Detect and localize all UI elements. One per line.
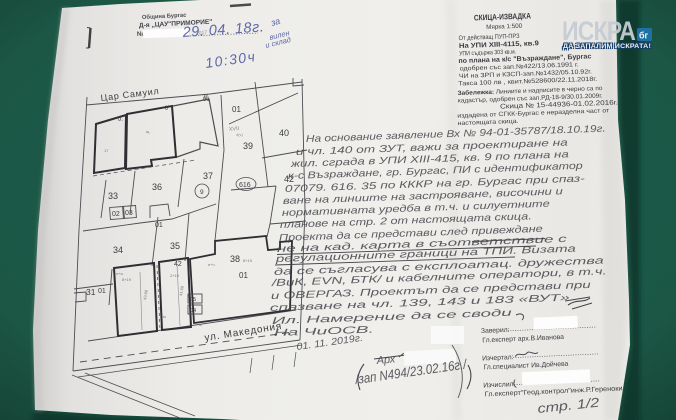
svg-text:35: 35 xyxy=(170,241,180,251)
svg-text:ДА ЗАПАЛИМ ИСКРАТА!: ДА ЗАПАЛИМ ИСКРАТА! xyxy=(563,43,651,50)
svg-text:8+19: 8+19 xyxy=(243,258,253,263)
svg-text:Арх: Арх xyxy=(375,353,396,367)
svg-text:п+ч: п+ч xyxy=(208,262,215,267)
svg-text:Изчислил:: Изчислил: xyxy=(483,381,516,389)
svg-text:ИСКРА: ИСКРА xyxy=(562,16,635,46)
svg-text:м: м xyxy=(163,314,166,319)
svg-text:01: 01 xyxy=(98,288,106,295)
svg-text:02: 02 xyxy=(112,211,120,218)
svg-text:8+19: 8+19 xyxy=(122,277,132,282)
svg-text:03: 03 xyxy=(125,210,133,217)
svg-text:34: 34 xyxy=(113,245,123,255)
svg-text:36: 36 xyxy=(152,182,162,192)
svg-text:37: 37 xyxy=(203,171,213,181)
svg-text:Мярка 1:500: Мярка 1:500 xyxy=(486,23,523,31)
svg-text:01: 01 xyxy=(239,271,248,280)
svg-text:616: 616 xyxy=(239,182,251,189)
svg-text:04: 04 xyxy=(190,308,196,314)
svg-text:Изчертал:: Изчертал: xyxy=(482,354,514,362)
svg-text:17: 17 xyxy=(104,148,109,153)
svg-text:39: 39 xyxy=(243,141,253,151)
svg-text:п+я: п+я xyxy=(116,271,123,276)
svg-text:4(v): 4(v) xyxy=(236,132,244,137)
svg-text:40: 40 xyxy=(279,128,289,138)
svg-text:33: 33 xyxy=(108,191,118,201)
svg-text:м: м xyxy=(199,322,202,327)
svg-text:31: 31 xyxy=(86,287,96,297)
svg-text:9: 9 xyxy=(200,189,204,196)
svg-text:01: 01 xyxy=(155,222,163,229)
svg-text:0': 0' xyxy=(203,94,208,101)
svg-text:0': 0' xyxy=(164,105,169,112)
svg-text:бг: бг xyxy=(639,31,649,41)
svg-text:42: 42 xyxy=(174,261,182,268)
svg-text:Заверил:: Заверил: xyxy=(481,327,510,335)
svg-text:2+19: 2+19 xyxy=(170,273,180,278)
svg-text:38: 38 xyxy=(230,254,240,264)
svg-text:05: 05 xyxy=(190,297,196,303)
svg-text:01: 01 xyxy=(232,105,241,114)
